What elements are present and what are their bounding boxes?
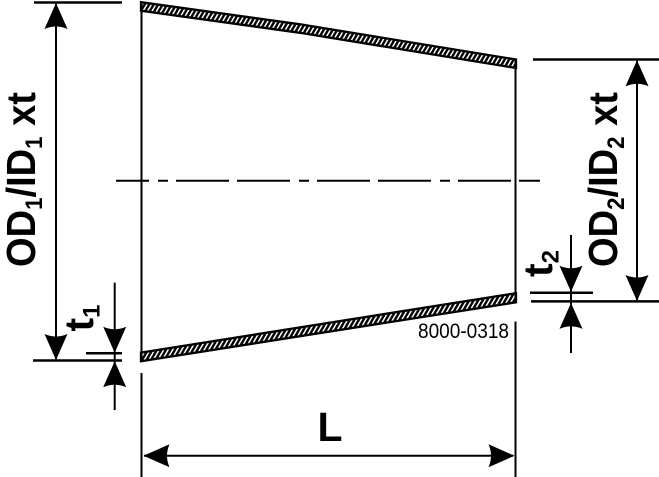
svg-text:8000-0318: 8000-0318	[418, 319, 509, 343]
svg-text:OD1/ID1 xt: OD1/ID1 xt	[0, 92, 48, 267]
svg-text:L: L	[317, 404, 342, 450]
svg-text:OD2/ID2 xt: OD2/ID2 xt	[580, 92, 630, 267]
